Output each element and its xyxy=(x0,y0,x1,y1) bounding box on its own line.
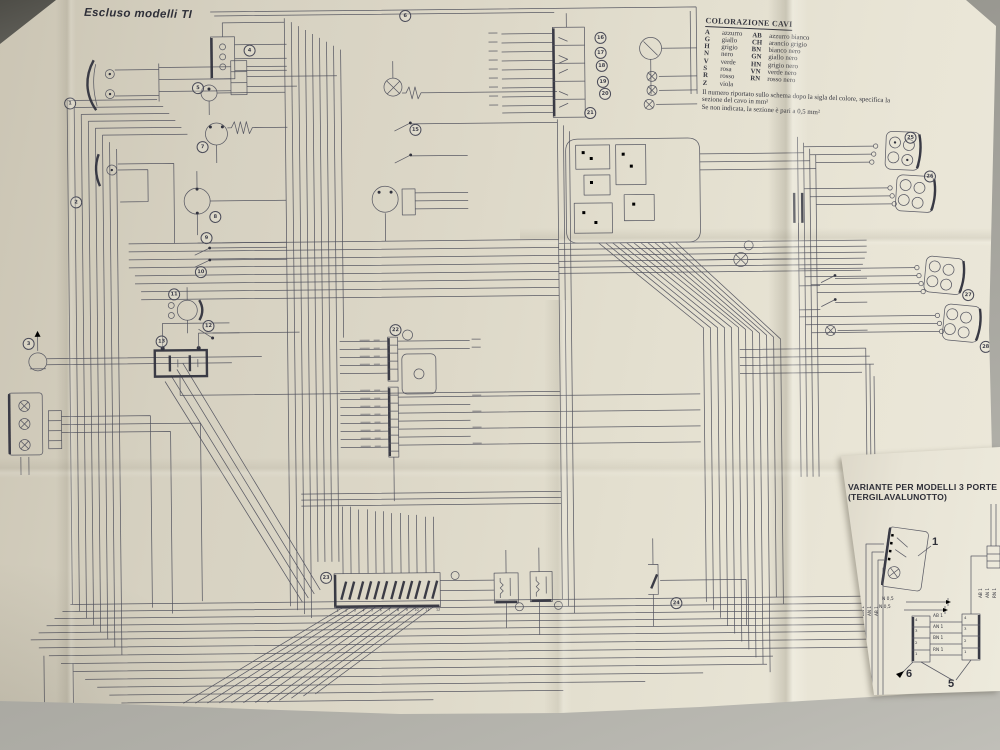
connector-a-pins: 4321 xyxy=(915,617,917,662)
component-marker: 18 xyxy=(596,60,608,72)
wire-label: RN 1 xyxy=(853,590,858,616)
edge-wire-labels: AB 1AN 1RN 1 xyxy=(978,574,997,598)
component-marker: 15 xyxy=(409,124,421,136)
component-marker: 1 xyxy=(64,97,76,109)
component-marker: 23 xyxy=(320,572,332,584)
fuse-number: 2 xyxy=(345,609,347,613)
component-marker: 7 xyxy=(197,141,209,153)
component-marker: 24 xyxy=(670,597,682,609)
component-marker: 9 xyxy=(200,232,212,244)
component-marker: 11 xyxy=(168,288,180,300)
pin-number: 2 xyxy=(915,640,917,651)
wire-color-legend: COLORAZIONE CAVI A azzurro G giallo xyxy=(701,10,917,121)
pin-number: 4 xyxy=(915,617,917,628)
ground-wire-label: N 0,5 xyxy=(882,597,894,602)
connector-b-pins: 4321 xyxy=(964,615,966,660)
component-marker: 10 xyxy=(195,266,207,278)
fuse-number: 6 xyxy=(380,608,382,612)
pin-number: 1 xyxy=(915,651,917,662)
variant-component-number: 1 xyxy=(932,536,938,548)
fuse-number: 9 xyxy=(406,608,408,612)
wire-label: AB 1 xyxy=(933,614,943,625)
connector-wire-labels: AB 1AN 1BN 1RN 1 xyxy=(933,614,943,659)
variant-junction-number: 5 xyxy=(948,678,954,690)
component-marker: 16 xyxy=(594,32,606,44)
photo-of-wiring-diagram: 1 2 3 4 5 6 7 8 9 10 xyxy=(0,0,1000,750)
pin-number: 3 xyxy=(964,626,966,637)
fuse-number: 11 xyxy=(425,608,429,612)
color-name: viola xyxy=(719,80,733,88)
wire-label: RN 1 xyxy=(933,648,943,659)
fuse-number: 5 xyxy=(371,608,373,612)
wire-label: RN 1 xyxy=(992,574,997,598)
color-name: rosso nero xyxy=(767,76,795,85)
legend-color-row: Z viola xyxy=(703,80,741,89)
component-marker: 19 xyxy=(597,76,609,88)
variant-arrow-number: 6 xyxy=(906,668,912,680)
sheet-title: Escluso modelli TI xyxy=(84,7,192,21)
legend-combo-colors: AB azzurro bianco CH arancio grigio BN b… xyxy=(750,32,810,92)
legend-color-row: RN rosso nero xyxy=(750,75,807,85)
fuse-number: 1 xyxy=(336,609,338,613)
fuse-number: 7 xyxy=(388,608,390,612)
variant-title: VARIANTE PER MODELLI 3 PORTE (TERGILAVAL… xyxy=(848,482,997,502)
color-code: Z xyxy=(703,80,720,88)
component-marker: 25 xyxy=(904,132,916,144)
ground-wire-label: N 0,5 xyxy=(879,605,891,610)
component-marker: 5 xyxy=(192,82,204,94)
component-marker: 28 xyxy=(980,341,992,353)
wire-label: BN 1 xyxy=(933,636,943,647)
pin-number: 1 xyxy=(964,649,966,660)
color-code: RN xyxy=(750,75,767,83)
component-marker: 8 xyxy=(209,211,221,223)
wire-label: AN 1 xyxy=(985,574,990,598)
fuse-number: 4 xyxy=(362,608,364,612)
variant-title-line2: (TERGILAVALUNOTTO) xyxy=(848,492,997,502)
wire-label: AN 1 xyxy=(867,590,872,616)
component-marker: 26 xyxy=(924,170,936,182)
variant-left-wire-labels: RN 1BN 1AN 1AB 1 xyxy=(853,590,879,616)
fuse-number: 10 xyxy=(414,608,418,612)
legend-single-colors: A azzurro G giallo H grigio xyxy=(703,28,743,88)
component-marker: 6 xyxy=(399,10,411,22)
pin-number: 4 xyxy=(964,615,966,626)
fuse-number: 12 xyxy=(436,608,440,612)
component-marker: 21 xyxy=(584,107,596,119)
fuse-number: 8 xyxy=(397,608,399,612)
component-marker: 22 xyxy=(389,324,401,336)
wire-label: AB 1 xyxy=(978,574,983,598)
variant-flap: VARIANTE PER MODELLI 3 PORTE (TERGILAVAL… xyxy=(836,444,1000,696)
variant-flap-paper: VARIANTE PER MODELLI 3 PORTE (TERGILAVAL… xyxy=(836,444,1000,696)
pin-number: 2 xyxy=(964,638,966,649)
component-marker: 3 xyxy=(23,338,35,350)
variant-title-line1: VARIANTE PER MODELLI 3 PORTE xyxy=(848,482,997,492)
component-marker: 17 xyxy=(595,47,607,59)
component-marker: 4 xyxy=(244,45,256,57)
component-marker: 14 xyxy=(77,739,89,750)
wire-label: BN 1 xyxy=(860,590,865,616)
component-marker: 13 xyxy=(156,335,168,347)
component-marker: 2 xyxy=(70,196,82,208)
pin-number: 3 xyxy=(915,628,917,639)
component-marker: 27 xyxy=(962,289,974,301)
component-marker: 12 xyxy=(202,320,214,332)
wire-label: AB 1 xyxy=(874,590,879,616)
wire-label: AN 1 xyxy=(933,625,943,636)
fuse-number: 3 xyxy=(354,609,356,613)
component-marker: 20 xyxy=(599,88,611,100)
